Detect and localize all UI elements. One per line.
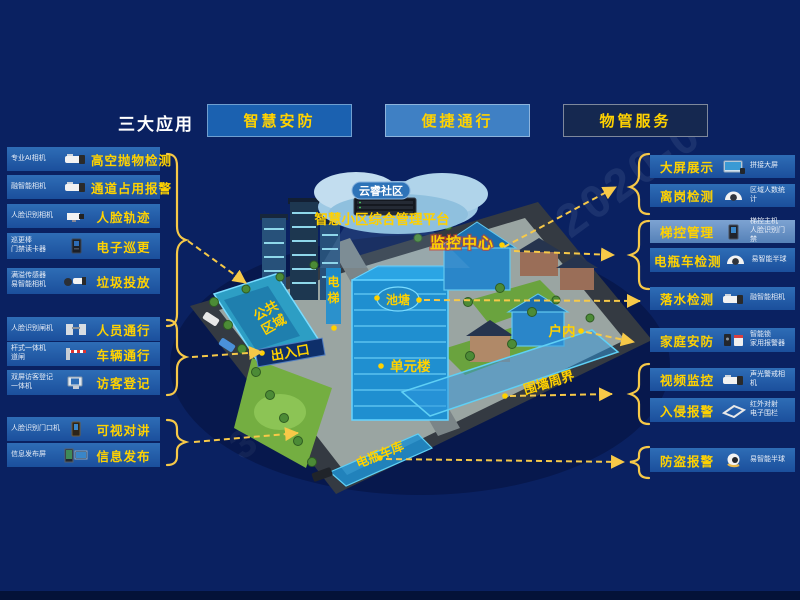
list-item-elevator-control: 梯控管理 梯控主机 人脸识别门禁	[650, 220, 795, 243]
feature-label: 视频监控	[654, 370, 720, 389]
device-name: 满溢传感器 易智能相机	[11, 272, 61, 290]
feature-label: 电瓶车检测	[654, 251, 722, 270]
feature-label: 高空抛物检测	[91, 150, 172, 169]
feature-label: 离岗检测	[654, 186, 720, 205]
list-item-info-publish: 信息发布屏 信息发布	[7, 443, 160, 467]
device-name: 融智能相机	[11, 183, 61, 192]
zone-label-pond: 池塘	[386, 292, 410, 307]
feature-label: 信息发布	[91, 446, 156, 465]
feature-label: 通道占用报警	[91, 178, 172, 197]
list-item-pedestrian-access: 人脸识别闸机 人员通行	[7, 317, 160, 341]
device-name: 人脸识别相机	[11, 212, 61, 221]
box-camera-icon	[61, 208, 91, 224]
access-panel-icon	[720, 224, 748, 240]
svg-text:电: 电	[327, 274, 339, 289]
list-item-absence-detection: 离岗检测 区域人数统计	[650, 184, 795, 207]
barrier-gate-icon	[61, 346, 91, 362]
list-item-e-patrol: 巡更棒 门禁读卡器 电子巡更	[7, 233, 160, 259]
device-name: 专业AI相机	[11, 155, 61, 164]
list-item-garbage-drop: 满溢传感器 易智能相机 垃圾投放	[7, 268, 160, 294]
device-name: 人脸识别闸机	[11, 325, 61, 334]
list-item-big-screen: 大屏展示 拼接大屏	[650, 155, 795, 178]
device-name: 红外对射 电子围栏	[748, 401, 791, 419]
svg-text:梯: 梯	[327, 290, 339, 305]
turnstile-icon	[61, 321, 91, 337]
device-name: 梯控主机 人脸识别门禁	[748, 218, 791, 244]
device-name: 易智能半球	[748, 456, 791, 465]
platform-label: 智慧小区综合管理平台	[315, 211, 450, 227]
list-item-vehicle-access: 杆式一体机 道闸 车辆通行	[7, 342, 160, 366]
smart-community-dashboard: 2020-0 33- 三大应用 智慧安防 便捷通行 物管服务	[0, 0, 800, 600]
list-item-burglar-alarm: 防盗报警 易智能半球	[650, 448, 795, 472]
list-item-home-security: 家庭安防 智能锁 家用报警器	[650, 328, 795, 352]
list-item-visitor-registration: 双屏访客登记 一体机 访客登记	[7, 370, 160, 395]
list-item-lane-occupancy: 融智能相机 通道占用报警	[7, 175, 160, 199]
feature-label: 家庭安防	[654, 331, 720, 350]
sensor-and-bullet-camera-icon	[61, 273, 91, 289]
feature-label: 电子巡更	[91, 237, 156, 256]
device-name: 信息发布屏	[11, 451, 61, 460]
device-name: 人脸识别门口机	[11, 425, 61, 434]
device-name: 融智能相机	[748, 294, 791, 303]
bullet-camera-icon	[720, 372, 748, 388]
device-name: 杆式一体机 道闸	[11, 345, 61, 363]
device-name: 区域人数统计	[748, 187, 791, 205]
cloud-label: 云睿社区	[359, 184, 403, 198]
list-item-ebike-detection: 电瓶车检测 易智能半球	[650, 248, 795, 272]
turret-camera-icon	[720, 452, 748, 468]
feature-label: 人员通行	[91, 320, 156, 339]
bottom-bar	[0, 591, 800, 600]
dome-camera-icon	[722, 252, 750, 268]
electronic-fence-icon	[720, 402, 748, 418]
feature-label: 入侵报警	[654, 401, 720, 420]
list-item-drowning-detection: 落水检测 融智能相机	[650, 287, 795, 310]
feature-label: 访客登记	[91, 373, 156, 392]
feature-label: 大屏展示	[654, 157, 720, 176]
smart-lock-alarm-icon	[720, 332, 748, 348]
list-item-video-intercom: 人脸识别门口机 可视对讲	[7, 417, 160, 441]
feature-label: 人脸轨迹	[91, 207, 156, 226]
dome-camera-icon	[720, 188, 748, 204]
info-screen-icon	[61, 447, 91, 463]
device-name: 智能锁 家用报警器	[748, 331, 791, 349]
feature-label: 防盗报警	[654, 451, 720, 470]
list-item-intrusion-alarm: 入侵报警 红外对射 电子围栏	[650, 398, 795, 422]
card-reader-icon	[61, 238, 91, 254]
feature-label: 垃圾投放	[91, 272, 156, 291]
feature-label: 梯控管理	[654, 222, 720, 241]
list-item-high-altitude-throw: 专业AI相机 高空抛物检测	[7, 147, 160, 171]
bullet-camera-icon	[720, 291, 748, 307]
bullet-camera-icon	[61, 151, 91, 167]
device-name: 声光警戒相机	[748, 371, 791, 389]
device-name: 巡更棒 门禁读卡器	[11, 237, 61, 255]
feature-label: 落水检测	[654, 289, 720, 308]
door-station-icon	[61, 421, 91, 437]
device-name: 拼接大屏	[748, 162, 791, 171]
visitor-terminal-icon	[61, 375, 91, 391]
zone-label-unit-building: 单元楼	[390, 358, 431, 374]
zone-label-monitor-center: 监控中心	[430, 234, 494, 252]
video-wall-icon	[720, 159, 748, 175]
list-item-video-surveillance: 视频监控 声光警戒相机	[650, 368, 795, 391]
device-name: 双屏访客登记 一体机	[11, 374, 61, 392]
zone-label-indoor: 户内	[549, 323, 576, 339]
bullet-camera-icon	[61, 179, 91, 195]
feature-label: 可视对讲	[91, 420, 156, 439]
list-item-face-track: 人脸识别相机 人脸轨迹	[7, 204, 160, 228]
device-name: 易智能半球	[750, 256, 791, 265]
feature-label: 车辆通行	[91, 345, 156, 364]
